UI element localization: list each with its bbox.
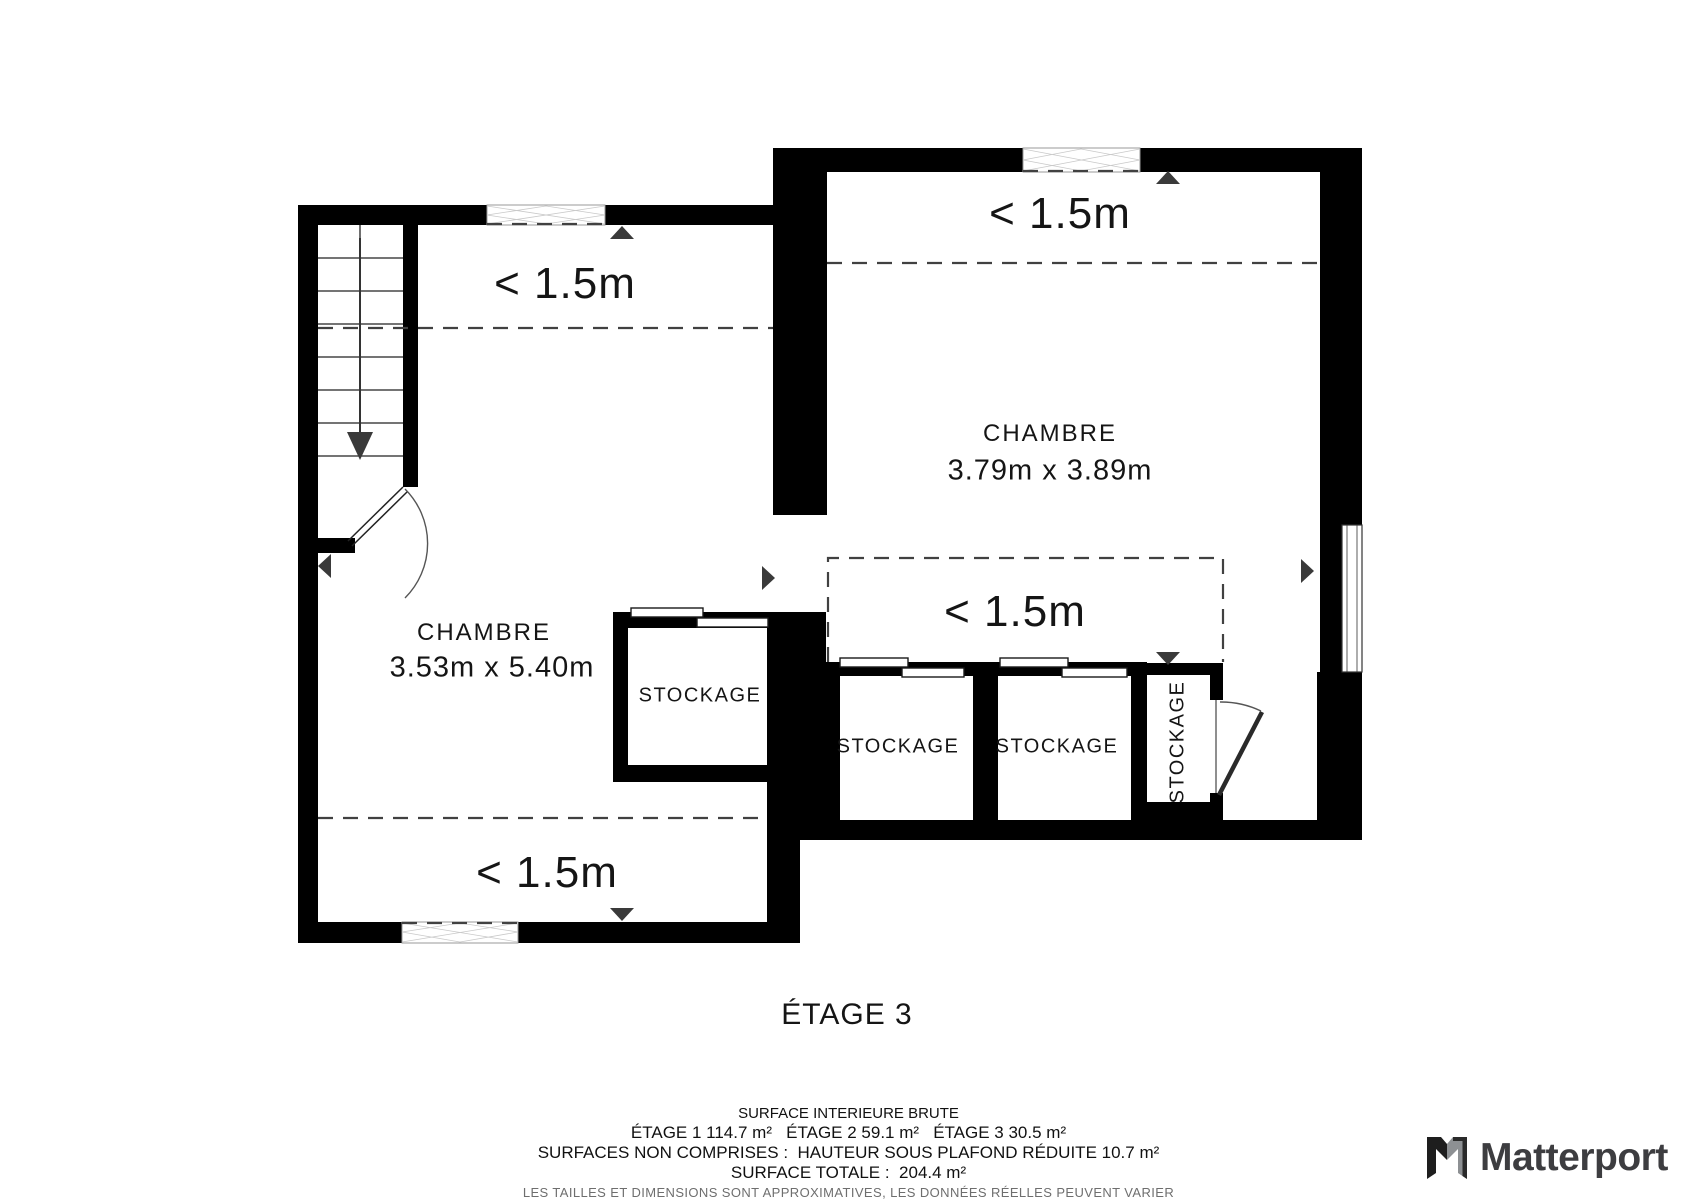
marker-down-icon: [610, 908, 634, 921]
room-dims-chambre-left: 3.53m x 5.40m: [390, 652, 595, 685]
door-left-room-icon: [348, 487, 428, 598]
walls: [298, 148, 1362, 943]
footer-surface-heading: SURFACE INTERIEURE BRUTE: [0, 1106, 1697, 1121]
stair-direction-arrow-icon: [347, 238, 373, 460]
matterport-m-icon: [1424, 1134, 1470, 1182]
window-top-right-icon: [1023, 148, 1140, 172]
footer-disclaimer: LES TAILLES ET DIMENSIONS SONT APPROXIMA…: [0, 1186, 1697, 1199]
low-ceiling-label-middle: < 1.5m: [944, 587, 1086, 637]
matterport-wordmark: Matterport: [1480, 1136, 1668, 1180]
storage-label-2: STOCKAGE: [837, 736, 960, 759]
low-ceiling-label-top-right: < 1.5m: [989, 189, 1131, 239]
marker-up-icon: [610, 226, 634, 239]
room-name-chambre-right: CHAMBRE: [983, 420, 1117, 448]
room-dims-chambre-right: 3.79m x 3.89m: [948, 455, 1153, 488]
marker-up-icon: [1156, 171, 1180, 184]
matterport-logo: Matterport: [1424, 1134, 1668, 1182]
window-bottom-left-icon: [402, 922, 518, 943]
floor-plan-page: < 1.5m < 1.5m < 1.5m < 1.5m CHAMBRE 3.53…: [0, 0, 1697, 1200]
door-storage-4-icon: [1216, 700, 1262, 795]
low-ceiling-label-top-left: < 1.5m: [494, 259, 636, 309]
storage-label-1: STOCKAGE: [639, 685, 762, 708]
window-right-wall-icon: [1342, 525, 1362, 672]
room-name-chambre-left: CHAMBRE: [417, 619, 551, 647]
storage-label-3: STOCKAGE: [996, 736, 1119, 759]
marker-left-icon: [318, 554, 331, 578]
marker-right-icon: [1301, 559, 1314, 583]
floor-title: ÉTAGE 3: [781, 998, 912, 1032]
storage-label-4: STOCKAGE: [1167, 681, 1190, 804]
low-ceiling-label-bottom-left: < 1.5m: [476, 848, 618, 898]
marker-right-icon: [762, 566, 775, 590]
window-top-left-icon: [487, 205, 605, 225]
